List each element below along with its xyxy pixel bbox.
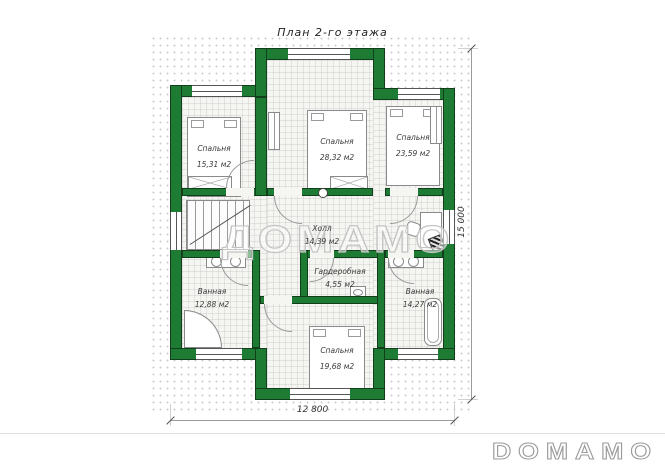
room-label-bedroom-tl-name: Спальня xyxy=(197,145,230,153)
window-bottom-right xyxy=(398,348,438,360)
door-bedroom-b xyxy=(264,296,292,304)
room-label-hall: Холл 14,39 м2 xyxy=(305,220,339,247)
dimension-line-bottom xyxy=(170,420,455,421)
window-top-right xyxy=(398,88,440,100)
vent-circle xyxy=(318,188,328,198)
page-title: План 2-го этажа xyxy=(0,26,665,39)
room-label-wardrobe: Гардеробная 4,55 м2 xyxy=(314,263,365,290)
radiator-right-bedroom xyxy=(430,106,442,144)
brand-logo: DOMAMO xyxy=(490,438,662,466)
room-label-bath-left: Ванная 12,88 м2 xyxy=(195,283,229,310)
room-label-bath-right-area: 14,27 м2 xyxy=(403,301,437,309)
radiator-center-bedroom xyxy=(268,112,280,150)
door-bedroom-tr xyxy=(390,188,418,196)
room-label-bath-right-name: Ванная xyxy=(403,288,437,296)
room-label-bedroom-tc-name: Спальня xyxy=(320,138,353,146)
wall-int-bath-left-right xyxy=(252,250,260,348)
wall-int-bath-right-left xyxy=(377,250,385,348)
bed-bedroom-bottom: Спальня 19,68 м2 xyxy=(309,326,365,392)
room-label-bath-left-area: 12,88 м2 xyxy=(195,301,229,309)
floor-plan-sheet: План 2-го этажа Спальня 15,31 м2 Спальня… xyxy=(0,0,665,470)
room-label-bedroom-tr-area: 23,59 м2 xyxy=(396,150,430,158)
room-label-hall-area: 14,39 м2 xyxy=(305,238,339,246)
door-bedroom-tc xyxy=(274,188,302,196)
wall-protrusion-left xyxy=(255,48,267,97)
dimension-right-value: 15 000 xyxy=(457,192,467,252)
room-label-bedroom-tc-area: 28,32 м2 xyxy=(320,154,354,162)
door-bedroom-tl xyxy=(226,188,254,196)
room-label-hall-name: Холл xyxy=(305,225,339,233)
window-bottom-center xyxy=(290,388,350,400)
room-label-bedroom-b-name: Спальня xyxy=(320,347,353,355)
window-top-center xyxy=(288,48,350,60)
room-label-bedroom-tr-name: Спальня xyxy=(396,134,429,142)
room-label-wardrobe-area: 4,55 м2 xyxy=(314,281,365,289)
extension-line-right-bottom xyxy=(458,399,478,400)
room-label-bedroom-tl-area: 15,31 м2 xyxy=(197,161,231,169)
room-label-wardrobe-name: Гардеробная xyxy=(314,268,365,276)
wall-int-left-center xyxy=(255,97,267,196)
window-left xyxy=(170,212,182,250)
footer-divider xyxy=(0,433,665,434)
room-label-bath-right: Ванная 14,27 м2 xyxy=(403,283,437,310)
extension-line-right-top xyxy=(458,48,478,49)
room-label-bath-left-name: Ванная xyxy=(195,288,229,296)
window-bottom-left xyxy=(196,348,242,360)
dimension-line-right xyxy=(471,48,472,400)
room-label-bedroom-b-area: 19,68 м2 xyxy=(320,363,354,371)
brand-logo-text: DOMAMO xyxy=(492,438,658,464)
dimension-bottom-value: 12 800 xyxy=(170,405,455,415)
window-top-left xyxy=(192,85,242,97)
